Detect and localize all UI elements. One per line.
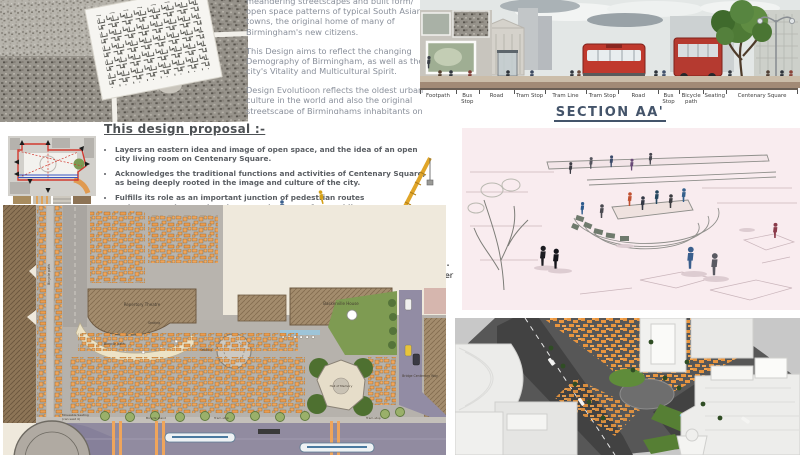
presentation-board: meandering streetscapes and built form/ …	[0, 0, 800, 455]
svg-text:Bridge Centenary Way: Bridge Centenary Way	[402, 374, 438, 378]
svg-text:Hall of Memory: Hall of Memory	[330, 384, 353, 388]
svg-text:Bicycle path: Bicycle path	[104, 342, 125, 346]
aerial-render-panel	[455, 318, 800, 455]
site-plan-panel: Repertory Theatre Baskerville House Seat…	[0, 205, 446, 455]
tram	[583, 44, 645, 77]
svg-text:Seating: Seating	[148, 321, 160, 325]
street-section-panel	[420, 0, 800, 88]
svg-text:(can seat 4): (can seat 4)	[62, 417, 80, 421]
svg-text:Seating: Seating	[200, 348, 212, 352]
intro-text-block: meandering streetscapes and built form/ …	[246, 0, 426, 114]
street-section-image	[420, 0, 800, 88]
mid-building	[238, 295, 286, 321]
concept-diagram	[8, 136, 96, 196]
sketch-collage-image	[0, 0, 248, 122]
svg-text:Bicycle path: Bicycle path	[47, 264, 51, 285]
broad-street-road	[36, 421, 446, 455]
intro-paragraph-2: This Design aims to reflect the changing…	[246, 46, 426, 77]
svg-text:Tram stop: Tram stop	[365, 416, 381, 420]
plaza-sketch-panel	[462, 128, 800, 310]
svg-text:Repertory Theatre: Repertory Theatre	[124, 302, 161, 307]
billboard-wall	[420, 10, 492, 76]
bus	[674, 38, 722, 81]
section-title: SECTION AA'	[420, 101, 800, 120]
intro-paragraph-3: Design Evolutioon reflects the oldest ur…	[246, 85, 426, 114]
sketch-collage-panel	[0, 0, 248, 122]
proposal-heading: This design proposal :-	[104, 122, 445, 136]
furniture-street	[36, 205, 63, 421]
pink-building	[424, 288, 446, 314]
texture-thumbnails	[13, 196, 91, 204]
svg-text:Bicycle stand: Bicycle stand	[146, 416, 166, 420]
svg-text:Tram stop: Tram stop	[213, 416, 229, 420]
intro-paragraph-1: meandering streetscapes and built form/ …	[246, 0, 426, 37]
svg-text:Baskerville House: Baskerville House	[323, 301, 359, 306]
